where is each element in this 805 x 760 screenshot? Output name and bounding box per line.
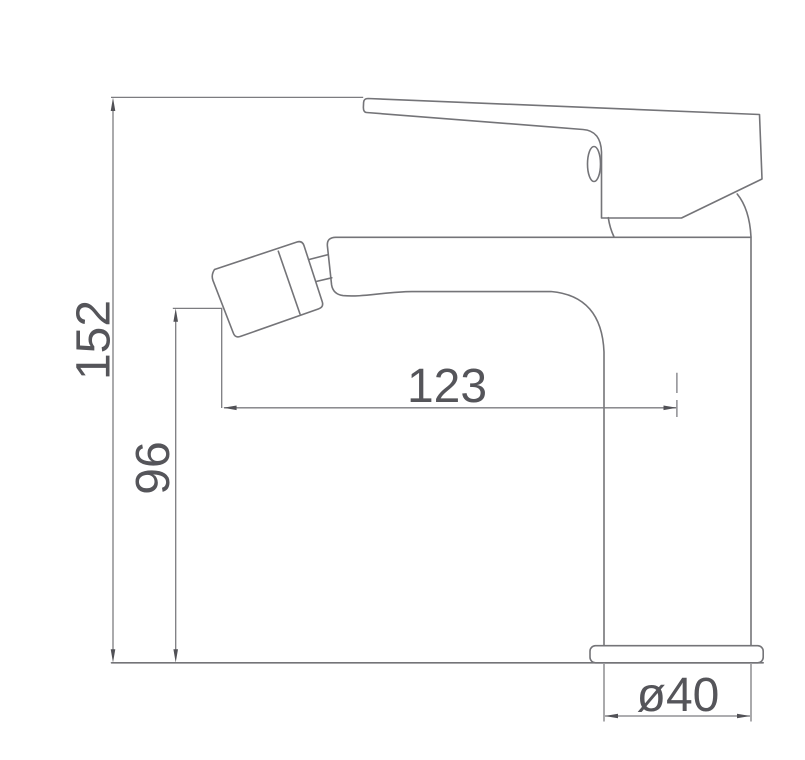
technical-drawing-canvas: 152 96 123 ø40 [0, 0, 805, 760]
dim-total-height-arrow-down [111, 649, 116, 662]
dim-spout-reach-arrow-left [223, 406, 236, 411]
dimension-label-total-height: 152 [68, 300, 121, 380]
dim-total-height-arrow-up [111, 98, 116, 111]
dimension-label-spout-height: 96 [127, 441, 180, 494]
handle-pivot-detail [588, 147, 601, 182]
aerator-neck-line-bottom [317, 278, 332, 282]
aerator-neck-line-top [309, 255, 329, 260]
dim-base-diameter-arrow-left [605, 714, 618, 719]
aerator-cap-divider [278, 251, 300, 314]
cartridge-dome-arc-left [608, 218, 614, 237]
dim-base-diameter-arrow-right [737, 714, 750, 719]
cartridge-dome-arc-right [737, 194, 751, 237]
dim-spout-height-arrow-up [173, 308, 178, 321]
aerator-outline [212, 242, 322, 337]
dim-spout-reach-arrow-right [664, 406, 677, 411]
base-flange [590, 646, 763, 663]
handle-lever-outline [363, 99, 762, 219]
dim-spout-height-extension-line [173, 308, 222, 408]
faucet-technical-drawing: 152 96 123 ø40 [0, 0, 805, 760]
dimension-label-spout-reach: 123 [407, 360, 487, 413]
spout-and-body-outline [327, 237, 751, 645]
dimension-annotations: 152 96 123 ø40 [68, 97, 752, 722]
dim-spout-height-arrow-down [173, 649, 178, 662]
dimension-label-base-diameter: ø40 [637, 669, 720, 722]
